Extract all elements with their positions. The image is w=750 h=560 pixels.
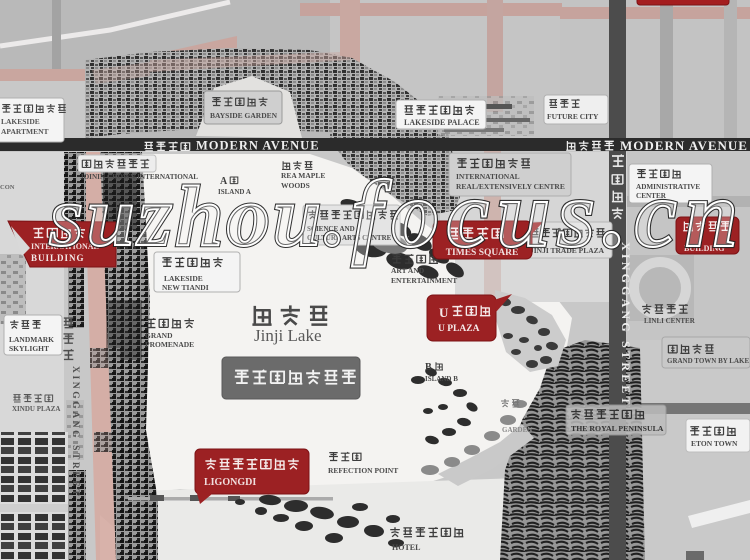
svg-text:LINLI CENTER: LINLI CENTER — [644, 317, 696, 325]
svg-text:APARTMENT: APARTMENT — [1, 127, 49, 136]
svg-text:LIGONGDI: LIGONGDI — [204, 477, 256, 488]
svg-text:HOTEL: HOTEL — [392, 543, 420, 552]
svg-text:ISLAND B: ISLAND B — [425, 375, 458, 383]
svg-text:FUTURE CITY: FUTURE CITY — [547, 112, 599, 121]
svg-text:PROMENADE: PROMENADE — [145, 340, 194, 349]
svg-text:GRAND TOWN BY LAKE: GRAND TOWN BY LAKE — [667, 357, 749, 365]
svg-text:BAYSIDE GARDEN: BAYSIDE GARDEN — [210, 111, 278, 120]
svg-text:MODERN AVENUE: MODERN AVENUE — [620, 138, 748, 153]
svg-text:LAKESIDE: LAKESIDE — [164, 274, 203, 283]
svg-text:B: B — [425, 362, 432, 373]
svg-text:U PLAZA: U PLAZA — [438, 324, 480, 334]
svg-text:SKYLIGHT: SKYLIGHT — [9, 344, 49, 353]
svg-text:NEW TIANDI: NEW TIANDI — [162, 283, 209, 292]
svg-text:ETON TOWN: ETON TOWN — [691, 439, 738, 448]
svg-text:THE ROYAL PENINSULA: THE ROYAL PENINSULA — [571, 424, 664, 433]
svg-text:Jinji Lake: Jinji Lake — [254, 326, 322, 345]
svg-text:ART AND: ART AND — [391, 266, 425, 275]
svg-text:MODERN AVENUE: MODERN AVENUE — [196, 139, 320, 153]
svg-text:XINGGANG STREET: XINGGANG STREET — [70, 366, 80, 498]
svg-text:GARDEN: GARDEN — [502, 426, 532, 434]
svg-text:ENTERTAINMENT: ENTERTAINMENT — [391, 276, 457, 285]
svg-text:LAKESIDE PALACE: LAKESIDE PALACE — [404, 118, 480, 127]
svg-text:LAKESIDE: LAKESIDE — [1, 117, 40, 126]
svg-text:REFECTION POINT: REFECTION POINT — [328, 466, 398, 475]
svg-text:GRAND: GRAND — [145, 331, 173, 340]
svg-text:U: U — [439, 305, 449, 320]
svg-text:suzhou.: suzhou. — [49, 168, 349, 264]
svg-text:LANDMARK: LANDMARK — [9, 335, 54, 344]
svg-text:focus.cn: focus.cn — [352, 161, 746, 267]
svg-text:XINDU PLAZA: XINDU PLAZA — [12, 405, 60, 413]
svg-text:CON: CON — [0, 184, 15, 191]
